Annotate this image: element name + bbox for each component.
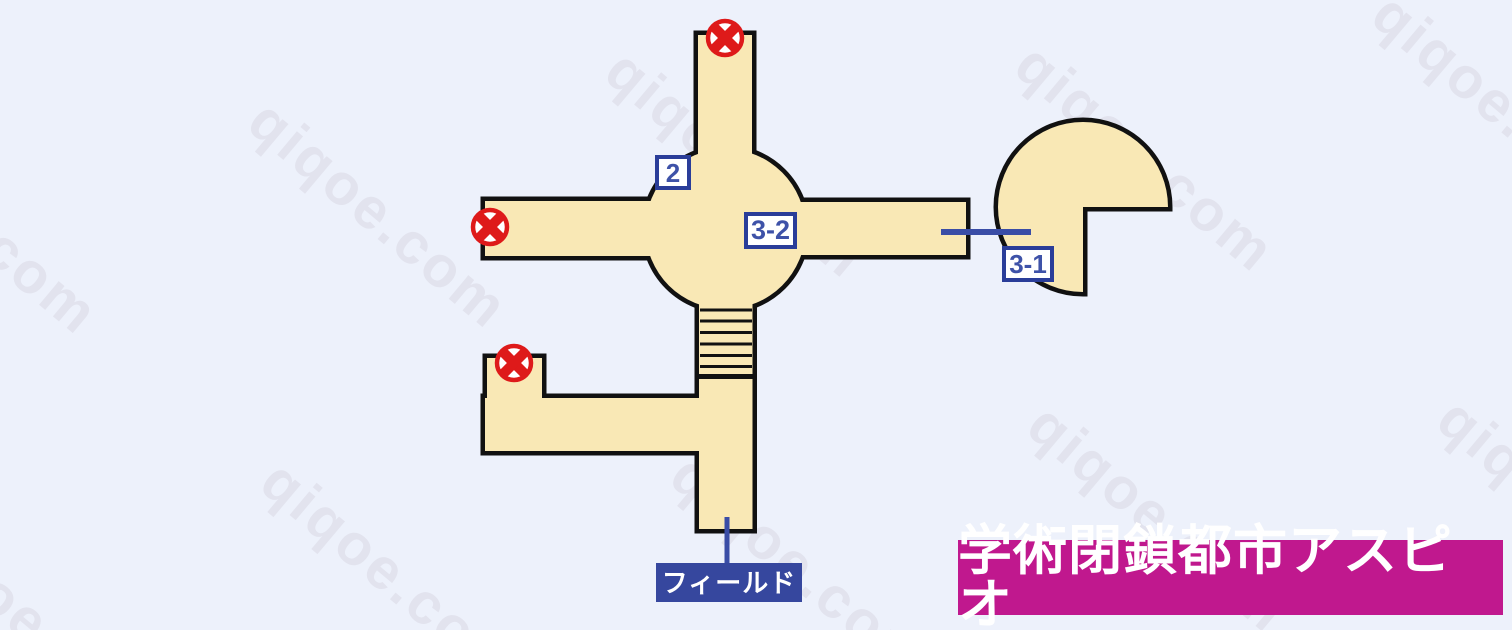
blocked-marker-west	[473, 210, 507, 244]
map-point-tag-2: 2	[655, 155, 691, 190]
field-exit-tag: フィールド	[656, 563, 802, 602]
blocked-marker-southwest	[497, 346, 531, 380]
stairs-treads	[699, 310, 753, 377]
map-canvas: qiqoe.com qiqoe.com qiqoe.com qiqoe.com …	[0, 0, 1512, 630]
blocked-marker-north	[708, 21, 742, 55]
map-point-tag-3-2: 3-2	[744, 212, 797, 249]
map-point-tag-3-1: 3-1	[1002, 246, 1054, 282]
area-title-banner: 学術閉鎖都市アスピオ	[958, 540, 1503, 615]
